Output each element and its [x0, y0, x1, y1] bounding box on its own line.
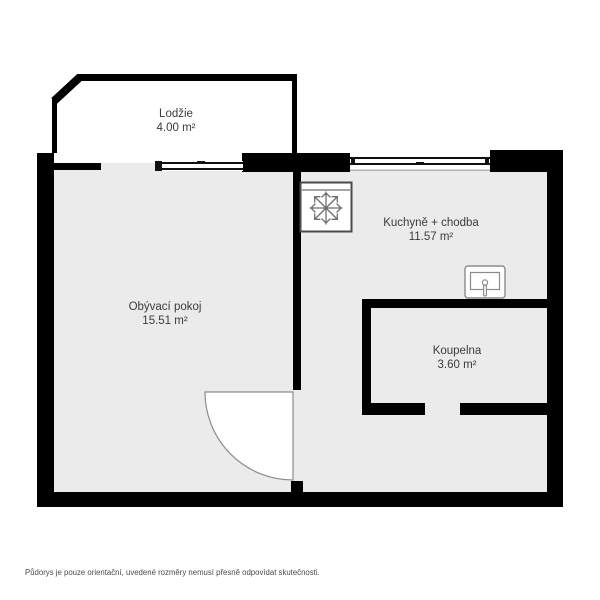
wall-east — [547, 150, 563, 507]
wall-north-right — [490, 150, 563, 172]
wall-loggia-east — [292, 74, 297, 153]
window-living-cap-left — [155, 161, 162, 171]
window-living-mid-tick — [197, 161, 205, 164]
window-living-room — [155, 161, 243, 171]
window-living-pane-bottom — [162, 168, 243, 170]
window-kitchen-sill — [350, 170, 490, 172]
window-kitchen — [350, 150, 490, 171]
window-kitchen-cap-left — [351, 157, 355, 165]
wall-livingroom-top — [54, 163, 101, 170]
wall-west — [37, 153, 54, 507]
room-area-kitchen-hall: 11.57 m² — [409, 231, 454, 243]
wall-south — [37, 492, 563, 507]
sink-tap — [484, 285, 487, 296]
wall-loggia-top — [77, 74, 297, 81]
sink-drain — [482, 280, 487, 285]
window-kitchen-mid-tick — [416, 162, 424, 165]
wall-bathroom-west — [362, 299, 371, 415]
window-kitchen-frame — [350, 150, 490, 171]
room-area-bathroom: 3.60 m² — [438, 359, 477, 371]
floorplan-page: Lodžie 4.00 m² Obývací pokoj 15.51 m² Ku… — [0, 0, 600, 600]
wall-bathroom-top — [362, 299, 547, 308]
floorplan-svg: Lodžie 4.00 m² Obývací pokoj 15.51 m² Ku… — [0, 0, 600, 600]
window-kitchen-cap-right — [485, 157, 489, 165]
room-label-bathroom: Koupelna — [433, 345, 482, 357]
sink-fixture — [465, 266, 505, 298]
wall-bathroom-south-left — [362, 403, 425, 415]
room-area-loggia: 4.00 m² — [157, 122, 196, 134]
room-label-loggia: Lodžie — [159, 108, 193, 120]
room-label-living-room: Obývací pokoj — [129, 301, 202, 313]
window-kitchen-pane-top — [350, 157, 490, 159]
disclaimer-text: Půdorys je pouze orientační, uvedené roz… — [25, 568, 320, 577]
wall-bathroom-south-right — [460, 403, 547, 415]
fridge-fixture — [301, 183, 352, 232]
room-label-kitchen-hall: Kuchyně + chodba — [383, 217, 479, 229]
wall-door-nub — [291, 481, 303, 492]
wall-loggia-west — [52, 98, 57, 153]
snowflake-icon — [310, 192, 342, 224]
room-area-living-room: 15.51 m² — [142, 315, 188, 327]
